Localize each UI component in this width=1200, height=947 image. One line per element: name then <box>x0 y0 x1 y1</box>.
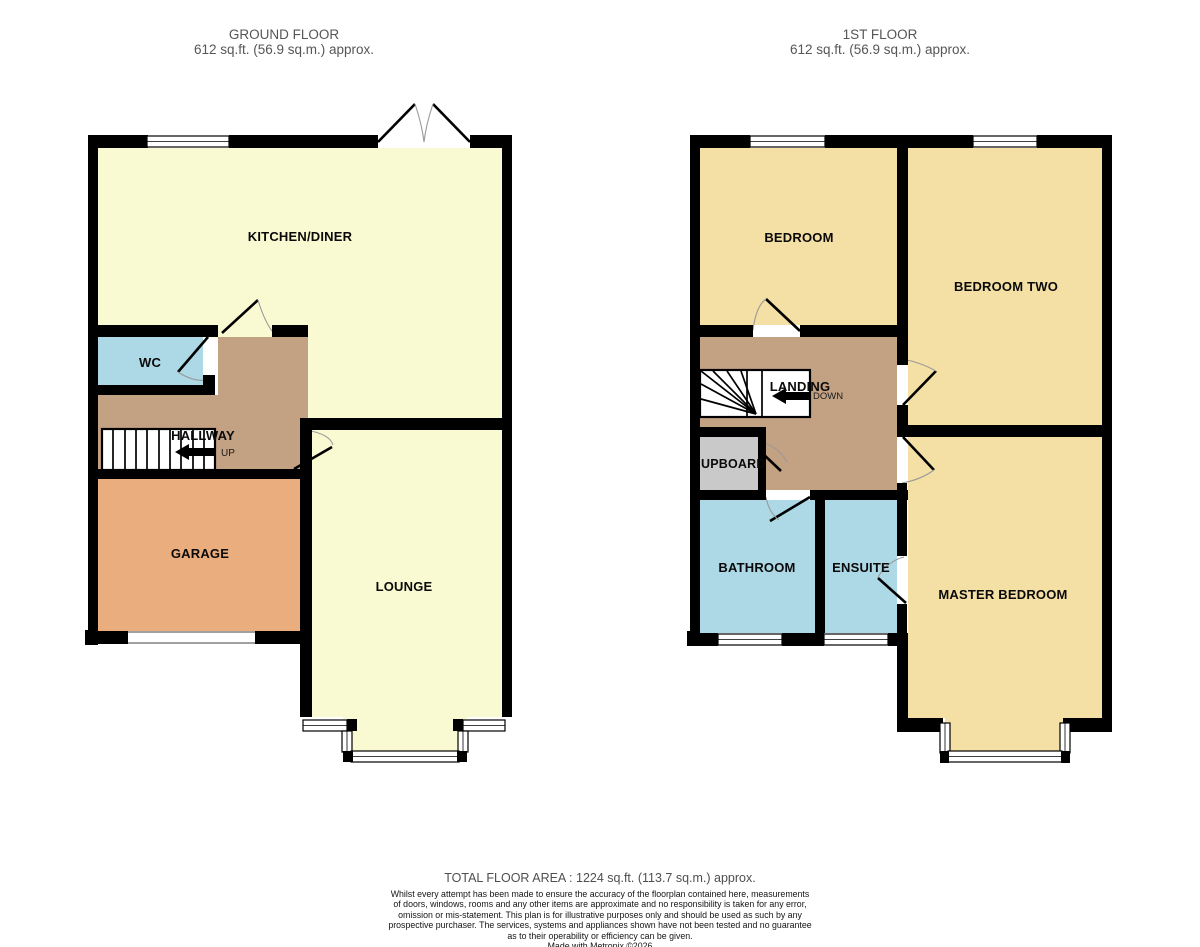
cupboard-label: UPBOARD <box>701 457 766 471</box>
bedroom-two-label: BEDROOM TWO <box>954 279 1058 294</box>
master-bay-interior <box>945 718 1065 753</box>
ensuite-label: ENSUITE <box>832 560 890 575</box>
bathroom-label: BATHROOM <box>718 560 795 575</box>
ensuite-window <box>824 634 888 645</box>
floorplan-page: GROUND FLOOR 612 sq.ft. (56.9 sq.m.) app… <box>0 0 1200 947</box>
up-label: UP <box>221 448 235 459</box>
wc-label: WC <box>139 355 161 370</box>
lounge-label: LOUNGE <box>376 579 433 594</box>
bathroom-window <box>718 634 782 645</box>
footer: TOTAL FLOOR AREA : 1224 sq.ft. (113.7 sq… <box>250 871 950 947</box>
french-doors <box>378 104 470 142</box>
total-floor-area: TOTAL FLOOR AREA : 1224 sq.ft. (113.7 sq… <box>250 871 950 885</box>
room-master-bedroom <box>908 437 1102 718</box>
floorplan-canvas: KITCHEN/DINER WC HALLWAY UP GARAGE LOUNG… <box>0 0 1200 947</box>
disclaimer-line: as to their operability or efficiency ca… <box>250 931 950 941</box>
disclaimer-line: Whilst every attempt has been made to en… <box>250 889 950 899</box>
lounge-bay-interior <box>343 715 467 753</box>
bedroom-label: BEDROOM <box>764 230 833 245</box>
ground-floor-plan: KITCHEN/DINER WC HALLWAY UP GARAGE LOUNG… <box>85 104 512 762</box>
master-bedroom-label: MASTER BEDROOM <box>938 587 1067 602</box>
disclaimer-line: prospective purchaser. The services, sys… <box>250 920 950 930</box>
garage-label: GARAGE <box>171 546 229 561</box>
disclaimer-line: of doors, windows, rooms and any other i… <box>250 899 950 909</box>
kitchen-window <box>147 136 229 147</box>
down-label: DOWN <box>813 391 843 402</box>
bedroom-two-window <box>973 136 1037 147</box>
kitchen-diner-label: KITCHEN/DINER <box>248 229 353 244</box>
first-floor-plan: BEDROOM BEDROOM TWO LANDING DOWN UPBOARD… <box>687 135 1112 763</box>
bedroom-window <box>750 136 825 147</box>
disclaimer-line: omission or mis-statement. This plan is … <box>250 910 950 920</box>
credit-line: Made with Metropix ©2026 <box>250 941 950 947</box>
garage-door-opening <box>128 631 255 644</box>
room-lounge <box>312 430 502 717</box>
hallway-label: HALLWAY <box>171 428 235 443</box>
